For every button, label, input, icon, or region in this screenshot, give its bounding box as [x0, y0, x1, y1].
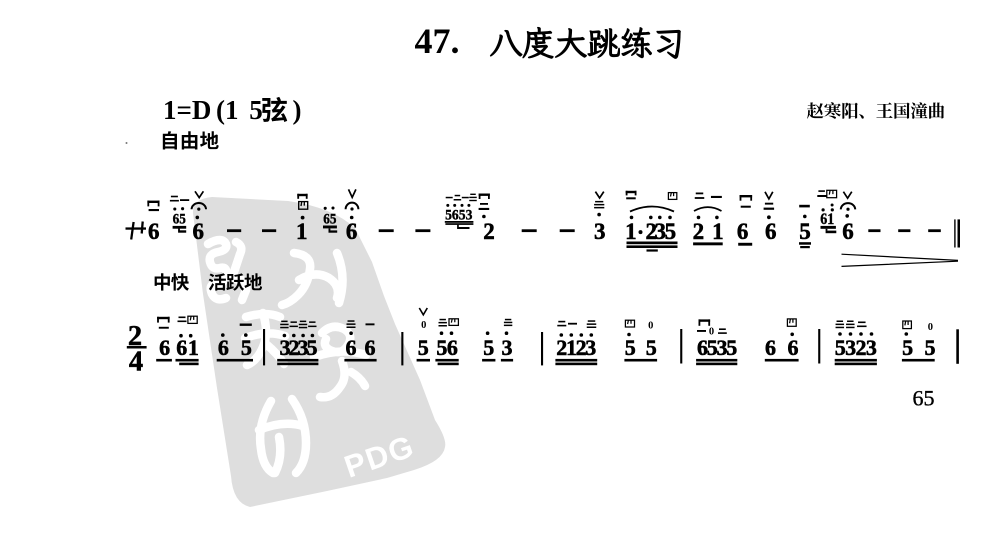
svg-text:2123: 2123	[556, 335, 596, 360]
svg-text:6: 6	[365, 335, 376, 360]
svg-text:65: 65	[323, 211, 336, 227]
svg-text:6: 6	[176, 335, 187, 360]
svg-text:5: 5	[925, 335, 936, 360]
svg-text:6: 6	[346, 335, 357, 360]
svg-text:2: 2	[483, 219, 495, 244]
svg-text:6: 6	[765, 335, 776, 360]
svg-text:(1: (1	[216, 95, 239, 125]
svg-text:6: 6	[788, 335, 799, 360]
svg-text:65: 65	[173, 211, 186, 227]
svg-text:6: 6	[447, 335, 458, 360]
svg-text:4: 4	[129, 347, 143, 378]
svg-text:5: 5	[646, 335, 657, 360]
svg-text:5: 5	[799, 219, 811, 244]
svg-text:6: 6	[842, 219, 854, 244]
svg-text:6: 6	[148, 219, 160, 244]
svg-text:0: 0	[928, 322, 933, 333]
svg-text:6: 6	[737, 219, 749, 244]
svg-text:5: 5	[665, 219, 677, 244]
svg-text:6: 6	[765, 219, 777, 244]
svg-text:1: 1	[625, 219, 637, 244]
svg-text:6: 6	[159, 335, 170, 360]
svg-text:47.: 47.	[415, 21, 460, 61]
svg-text:3: 3	[594, 219, 606, 244]
svg-text:5323: 5323	[835, 335, 877, 360]
svg-text:5: 5	[436, 335, 447, 360]
svg-text:5: 5	[418, 335, 429, 360]
svg-text:0: 0	[648, 320, 653, 331]
svg-text:5: 5	[241, 335, 252, 360]
svg-text:1: 1	[188, 335, 199, 360]
svg-text:5653: 5653	[445, 207, 472, 223]
svg-text:5: 5	[902, 335, 913, 360]
svg-text:6: 6	[346, 219, 358, 244]
svg-text:2: 2	[693, 219, 705, 244]
svg-text:3235: 3235	[280, 335, 318, 360]
svg-text:1=D: 1=D	[163, 95, 211, 125]
svg-text:1: 1	[712, 219, 724, 244]
svg-text:0: 0	[421, 320, 426, 331]
svg-text:6: 6	[218, 335, 229, 360]
svg-text:6535: 6535	[697, 335, 737, 360]
svg-text:5: 5	[483, 335, 494, 360]
svg-text:1: 1	[296, 219, 308, 244]
svg-text:): )	[293, 95, 302, 125]
svg-text:65: 65	[913, 385, 935, 410]
svg-text:6: 6	[193, 219, 205, 244]
svg-text:5: 5	[625, 335, 636, 360]
svg-text:0: 0	[709, 326, 714, 337]
svg-text:5: 5	[249, 95, 262, 125]
svg-text:61: 61	[820, 211, 834, 228]
svg-text:3: 3	[502, 335, 513, 360]
